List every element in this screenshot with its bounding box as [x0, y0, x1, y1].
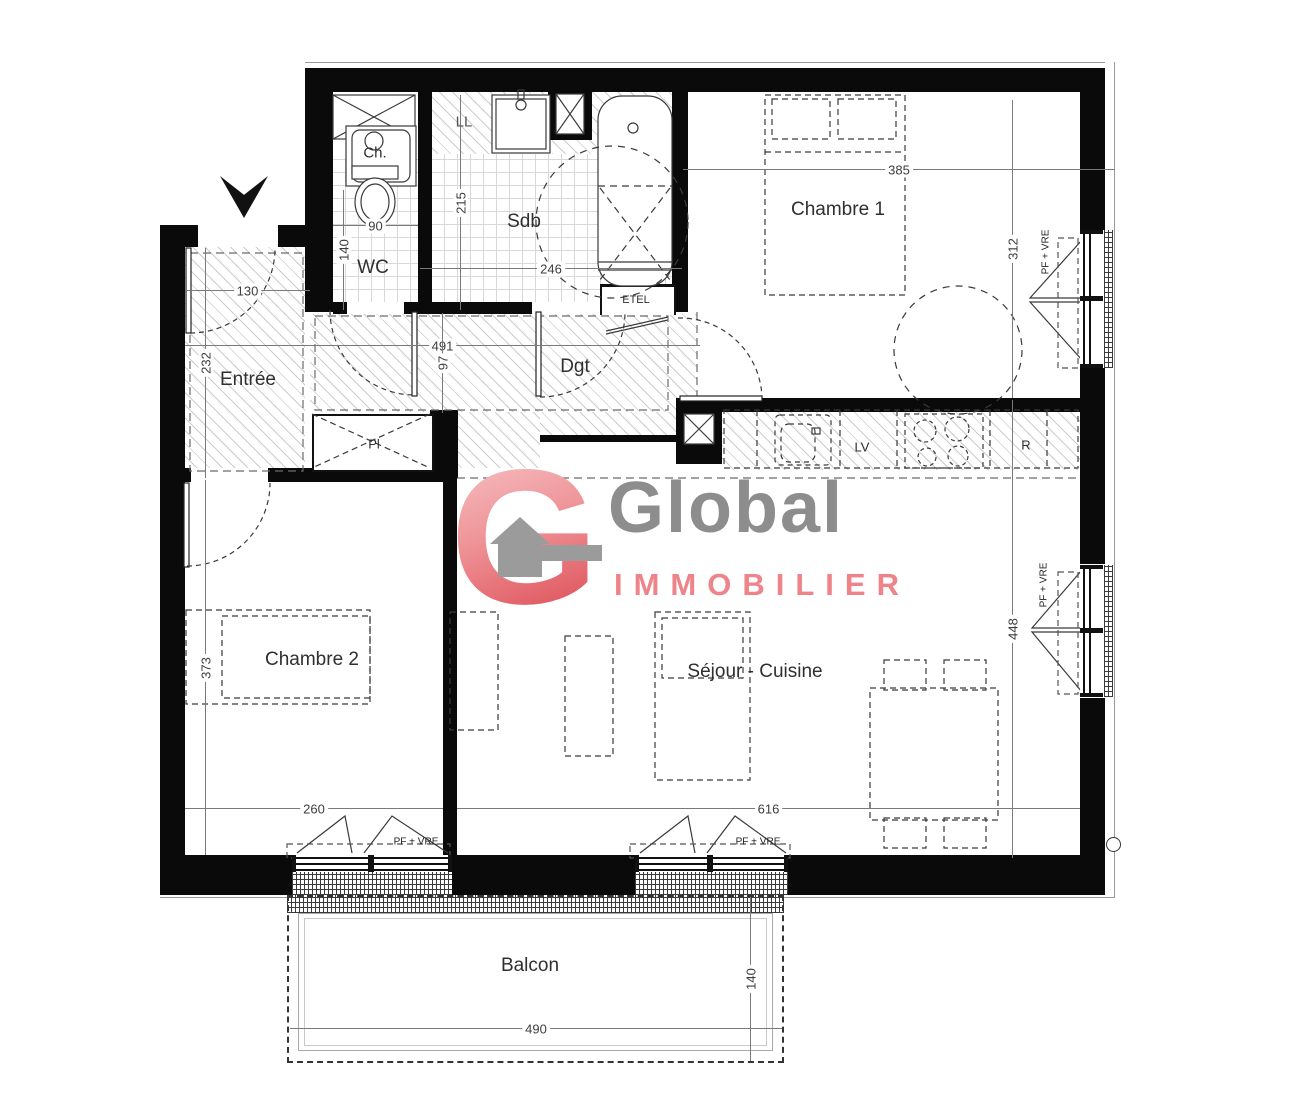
room-label-chambre1: Chambre 1 [791, 199, 885, 221]
balcony-threshold-grate-2 [635, 872, 788, 895]
dim-label: 490 [522, 1021, 550, 1036]
dim-balcon-width: 490 [290, 1028, 782, 1029]
window-label-sejour-south: PF + VRE [736, 837, 781, 848]
floor-plan: 385 312 448 215 246 90 140 130 232 491 9… [0, 0, 1303, 1097]
dim-label: 130 [234, 283, 262, 298]
balcony-threshold-grate-1 [292, 872, 452, 895]
window-frame-cap [1080, 230, 1103, 234]
room-label-wc: WC [357, 257, 389, 279]
dim-chambre2-depth: 373 [205, 480, 206, 855]
room-label-sejour: Séjour - Cuisine [687, 661, 822, 683]
window-frame-cap [1080, 296, 1103, 301]
window-chambre1-east [1080, 230, 1103, 368]
house-bar [520, 545, 602, 561]
dim-label: 448 [1005, 615, 1020, 643]
fixture-label-fridge: R [1021, 438, 1030, 453]
dim-wc-width: 90 [333, 225, 418, 226]
dim-label: 373 [198, 654, 213, 682]
dim-sejour-depth: 448 [1012, 400, 1013, 858]
room-label-sdb: Sdb [507, 211, 541, 233]
fixture-label-electrical-panel: ETEL [622, 294, 650, 306]
window-frame-cap [1080, 628, 1103, 633]
dim-label: 90 [365, 218, 385, 233]
shutter-box-sejour [1104, 565, 1113, 697]
dim-label: 140 [336, 236, 351, 264]
window-frame-cap [1080, 364, 1103, 368]
dim-label: 246 [537, 261, 565, 276]
dim-chambre1-width: 385 [683, 169, 1115, 170]
dim-label: 616 [755, 801, 783, 816]
dim-label: 140 [743, 965, 758, 993]
window-frame-cap [1080, 693, 1103, 697]
window-label-chambre2: PF + VRE [394, 837, 439, 848]
dim-label: 97 [435, 353, 450, 373]
dim-wc-depth: 140 [343, 190, 344, 310]
dim-chambre2-width: 260 [185, 808, 443, 809]
room-label-balcon: Balcon [501, 955, 559, 977]
fixture-label-washing-machine: LL [456, 114, 473, 131]
window-frame-cap [1080, 565, 1103, 569]
dim-entree-width: 130 [185, 290, 310, 291]
window-label-chambre1-east: PF + VRE [1041, 230, 1052, 275]
logo-brand-text: Global [608, 467, 844, 549]
dim-sejour-width: 616 [457, 808, 1080, 809]
window-sejour-east [1080, 565, 1103, 697]
dim-label: 385 [885, 162, 913, 177]
dim-label: 232 [198, 349, 213, 377]
logo-subtitle-text: IMMOBILIER [614, 567, 910, 603]
logo-house-icon [490, 517, 610, 597]
dim-label: 312 [1005, 235, 1020, 263]
dim-entree-depth: 232 [205, 248, 206, 478]
shutter-box-chambre1 [1104, 230, 1113, 368]
room-label-chambre2: Chambre 2 [265, 649, 359, 671]
house-roof [490, 517, 550, 544]
fixture-label-closet: Pl [368, 437, 380, 452]
dim-balcon-depth: 140 [750, 897, 751, 1061]
logo: G Global IMMOBILIER [450, 455, 890, 645]
fixture-label-dishwasher: LV [855, 440, 870, 455]
room-label-dgt: Dgt [560, 356, 590, 378]
dim-label: 260 [300, 801, 328, 816]
dim-dgt-width: 97 [442, 313, 443, 413]
dim-chambre1-depth: 312 [1012, 100, 1013, 398]
dim-sdb-width: 246 [420, 268, 682, 269]
fixture-label-water-heater: Ch. [363, 145, 386, 162]
dim-label: 215 [453, 189, 468, 217]
window-label-sejour-east: PF + VRE [1039, 563, 1050, 608]
room-label-entree: Entrée [220, 369, 276, 391]
